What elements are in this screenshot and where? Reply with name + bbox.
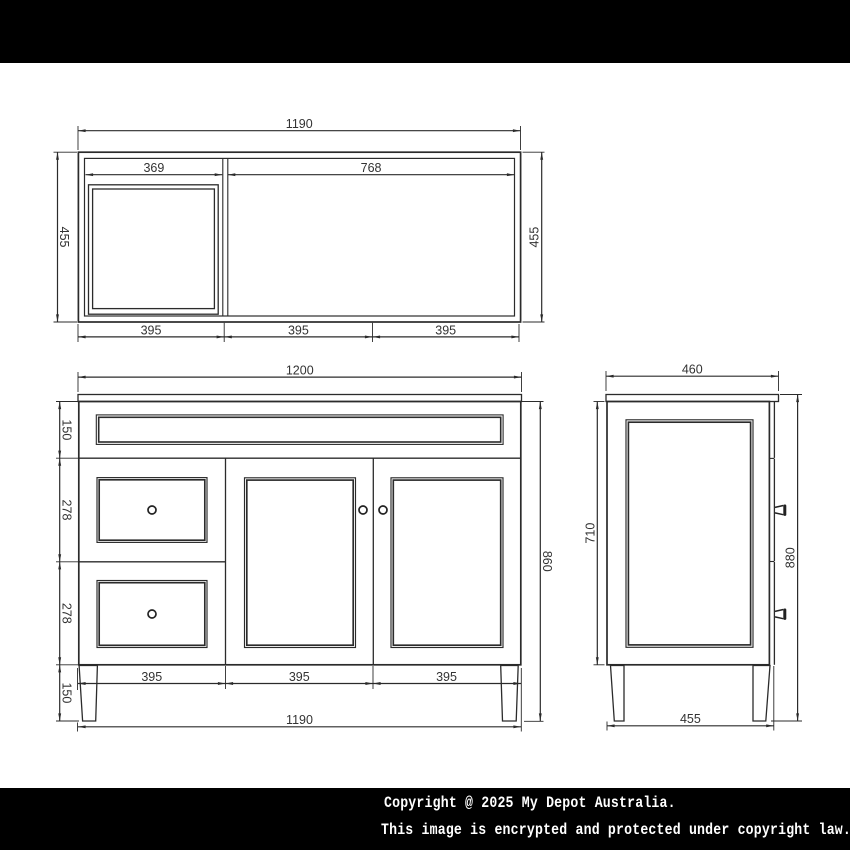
svg-text:455: 455 [57,227,71,248]
svg-text:880: 880 [784,547,798,568]
svg-text:395: 395 [141,323,162,337]
svg-text:278: 278 [59,603,73,624]
svg-text:1200: 1200 [286,364,314,378]
svg-text:150: 150 [59,682,73,703]
svg-text:455: 455 [680,712,701,726]
svg-text:369: 369 [143,161,164,175]
svg-text:1190: 1190 [286,713,313,727]
svg-text:460: 460 [682,363,703,377]
svg-text:278: 278 [59,500,73,521]
svg-text:768: 768 [361,161,382,175]
svg-text:860: 860 [540,551,554,572]
svg-text:395: 395 [288,323,309,337]
svg-text:395: 395 [289,670,310,684]
svg-text:455: 455 [527,227,541,248]
svg-text:395: 395 [435,323,456,337]
svg-text:395: 395 [141,670,162,684]
svg-text:710: 710 [584,523,598,544]
svg-text:150: 150 [59,419,73,440]
svg-text:1190: 1190 [286,117,313,131]
svg-text:395: 395 [436,670,457,684]
